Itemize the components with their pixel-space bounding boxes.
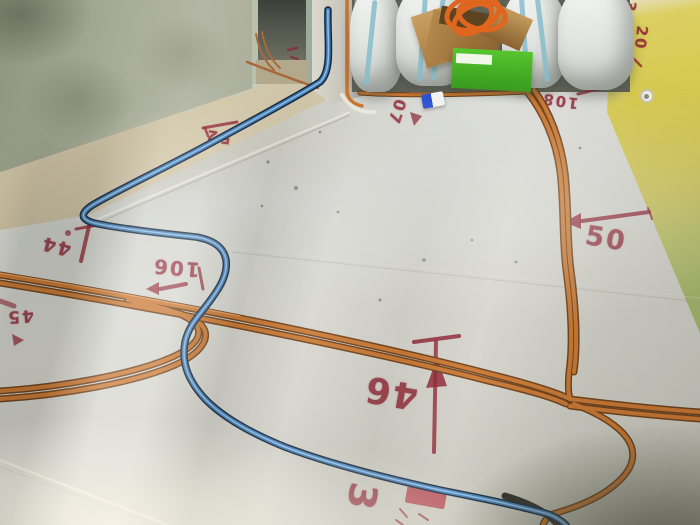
mark-107-arrow <box>410 112 422 126</box>
mark-45 <box>0 301 24 346</box>
speck <box>379 299 382 302</box>
speck <box>261 205 264 208</box>
copper-wire-2 <box>262 32 280 68</box>
mark-45-smudge <box>0 301 14 306</box>
orange-under <box>0 90 700 525</box>
speck <box>515 261 518 264</box>
mark-bottom-2 <box>419 514 428 520</box>
mark-106-head <box>146 282 159 295</box>
mark-46 <box>414 336 459 452</box>
orange-over <box>0 90 700 525</box>
seam-front-bright <box>0 460 168 525</box>
orange-arc-down-under <box>543 404 633 525</box>
mark-wall-tick-line <box>633 58 641 66</box>
floor-specks <box>261 131 582 302</box>
mark-44 <box>65 224 103 261</box>
wall-socket-dot <box>644 94 649 99</box>
mark-wall-tick <box>633 58 641 66</box>
speck <box>422 258 426 262</box>
orange-conduits <box>0 90 700 525</box>
seam-wall-edge-shadow <box>88 115 350 227</box>
mark-106-bar <box>199 268 203 289</box>
mark-bottom-1 <box>400 509 407 517</box>
mark-50-shaft <box>582 212 649 221</box>
seam-mid-highlight <box>232 248 700 298</box>
copper-wire-1 <box>256 34 274 70</box>
mark-45-arrow <box>12 334 24 346</box>
mark-50 <box>564 208 652 229</box>
copper-wire-floor <box>247 62 318 88</box>
mark-bottom-small <box>396 509 428 525</box>
mark-107 <box>410 112 422 126</box>
speck <box>294 186 298 190</box>
speck <box>337 211 340 214</box>
mark-106 <box>146 268 203 295</box>
green-box-label <box>456 53 492 65</box>
speck <box>471 239 474 242</box>
mark-44-blob <box>65 230 71 236</box>
mark-106-shaft <box>160 284 186 289</box>
mark-far-2 <box>291 57 298 59</box>
speck <box>266 160 269 163</box>
seam-wall-edge <box>86 112 350 224</box>
mark-44-stem <box>81 226 89 261</box>
mark-52-tick <box>205 128 208 136</box>
mark-bottom-3 <box>396 520 403 525</box>
board-seams <box>0 112 700 525</box>
orange-hairpin-b <box>0 304 206 399</box>
mark-52-bar <box>203 122 237 128</box>
mark-far-room <box>288 48 298 59</box>
speck <box>319 131 322 134</box>
seam-front-shadow <box>0 467 158 525</box>
speck <box>579 147 582 150</box>
copper-wires-doorway <box>247 32 318 88</box>
seam-mid <box>232 252 700 302</box>
orange-arc-down <box>543 404 633 525</box>
sack-4 <box>558 0 634 90</box>
mark-far-1 <box>288 48 297 50</box>
construction-room-photo: 52 44 45 106 107 108 50 46 3 20 3 <box>0 0 700 525</box>
